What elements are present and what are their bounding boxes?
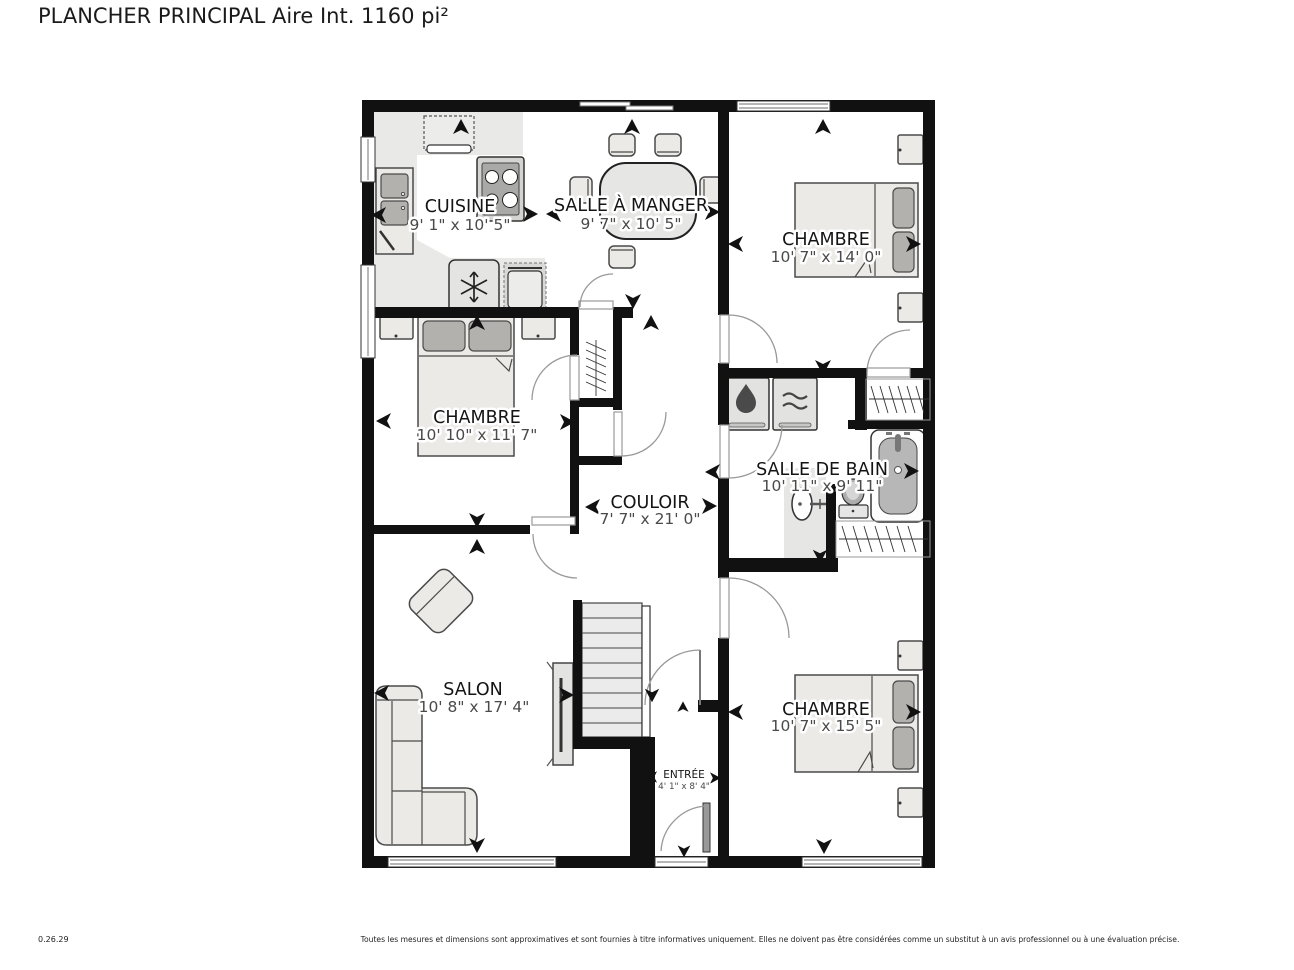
direction-arrow-icon [523, 206, 538, 222]
bedroom-top-right-furniture [795, 135, 923, 322]
direction-arrow-icon [625, 294, 641, 309]
direction-arrow-icon [469, 539, 485, 554]
room-name: SALON [443, 680, 502, 700]
direction-arrow-icon [643, 315, 659, 330]
direction-arrow-icon [585, 499, 600, 515]
floor-plan: CUISINE 9' 1" x 10' 5" SALLE À MANGER 9'… [0, 0, 1294, 970]
fridge-snowflake-icon [449, 260, 499, 314]
room-label-chambre-centre-gauche: CHAMBRE 10' 10" x 11' 7" [417, 408, 538, 444]
entry-threshold [655, 857, 708, 867]
nightstand [898, 293, 923, 322]
closet-rod [586, 340, 606, 396]
direction-arrow-icon [816, 839, 832, 854]
nightstand [898, 788, 923, 817]
closet-rod [866, 379, 930, 420]
window [737, 101, 830, 111]
dryer-waves-icon [773, 378, 817, 430]
direction-arrow-icon [376, 413, 391, 429]
room-dims: 9' 1" x 10' 5" [410, 216, 511, 234]
armchair [406, 566, 477, 637]
entry-door [661, 803, 710, 852]
direction-arrow-icon [815, 119, 831, 134]
room-name: CHAMBRE [782, 230, 870, 250]
room-dims: 4' 1" x 8' 4" [658, 782, 710, 792]
nightstand [898, 135, 923, 164]
direction-arrow-icon [702, 498, 717, 514]
direction-arrow-icon [678, 845, 691, 857]
washer-water-drop-icon [723, 378, 769, 430]
counter-cabinet [424, 116, 474, 153]
room-label-entree: ENTRÉE 4' 1" x 8' 4" [658, 768, 710, 792]
room-dims: 10' 11" x 9' 11" [762, 477, 883, 495]
room-label-chambre-bas-droite: CHAMBRE 10' 7" x 15' 5" [771, 700, 882, 735]
window [361, 137, 375, 182]
closet-rod [836, 521, 930, 557]
disclaimer-text: Toutes les mesures et dimensions sont ap… [283, 935, 1257, 944]
direction-arrow-icon [677, 701, 688, 712]
window [802, 857, 922, 867]
direction-arrow-icon [624, 119, 640, 134]
room-dims: 7' 7" x 21' 0" [600, 510, 701, 528]
stairs [582, 603, 650, 737]
room-label-chambre-haut-droite: CHAMBRE 10' 7" x 14' 0" [771, 230, 882, 266]
window [361, 265, 375, 358]
window [388, 857, 556, 867]
room-label-salon: SALON 10' 8" x 17' 4" [419, 680, 530, 716]
room-label-salle-de-bain: SALLE DE BAIN 10' 11" x 9' 11" [756, 460, 888, 495]
room-name: CHAMBRE [433, 408, 521, 428]
direction-arrow-icon [728, 236, 743, 252]
version-label: 0.26.29 [38, 935, 69, 944]
room-name: SALLE À MANGER [554, 194, 708, 216]
direction-arrow-icon [705, 464, 720, 480]
tv [547, 662, 573, 766]
room-label-couloir: COULOIR 7' 7" x 21' 0" [600, 493, 701, 528]
stair-rail [642, 606, 650, 737]
room-dims: 10' 8" x 17' 4" [419, 698, 530, 716]
room-name: ENTRÉE [663, 768, 704, 781]
room-dims: 10' 10" x 11' 7" [417, 426, 538, 444]
room-dims: 10' 7" x 15' 5" [771, 717, 882, 735]
room-name: CUISINE [425, 197, 496, 217]
direction-arrow-icon [469, 838, 485, 853]
dishwasher [504, 263, 546, 311]
room-dims: 9' 7" x 10' 5" [581, 215, 682, 233]
direction-arrow-icon [728, 704, 743, 720]
nightstand [898, 641, 923, 670]
room-dims: 10' 7" x 14' 0" [771, 248, 882, 266]
